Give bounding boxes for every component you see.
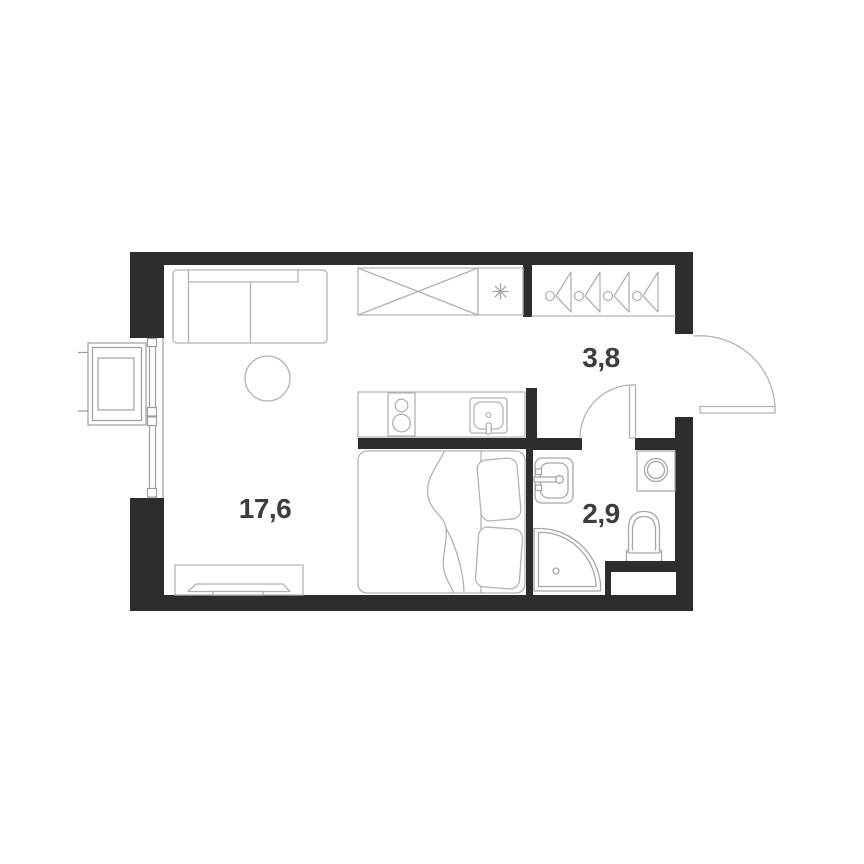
shaft-wall-top <box>605 561 676 572</box>
hanger-icon <box>575 272 601 312</box>
entrance-door <box>694 336 775 413</box>
ventilation-shaft <box>605 561 676 595</box>
wall-kitchen-hall <box>526 388 537 438</box>
kitchen-counter <box>358 392 525 437</box>
floor-plan-canvas: 17,6 3,8 2,9 <box>0 0 864 864</box>
washbasin-faucet <box>534 477 557 482</box>
tv-icon <box>188 584 290 592</box>
tv-stand <box>175 565 303 595</box>
bathroom-door <box>580 385 636 438</box>
shower-tray-outer <box>534 529 601 592</box>
window-handle-mid-2 <box>148 417 157 426</box>
appliance-nook <box>478 268 523 315</box>
wall-bath-top-left <box>533 438 582 450</box>
balcony-box-outer <box>88 343 146 425</box>
washing-machine-body <box>637 451 675 491</box>
shower <box>534 529 601 592</box>
entrance-door-leaf <box>700 407 775 414</box>
window-handle-mid-1 <box>148 408 157 417</box>
wardrobe <box>358 268 478 315</box>
bathroom-door-swing-arc <box>580 385 633 438</box>
balcony-stub-lines <box>78 353 88 412</box>
washbasin-tap <box>536 485 542 491</box>
wall-bed-bath <box>526 449 533 595</box>
sofa <box>173 270 327 343</box>
wall-left-upper <box>130 252 164 338</box>
wall-bath-top-right <box>635 438 675 450</box>
wall-right-upper <box>675 252 693 334</box>
hanger-icon <box>604 272 630 312</box>
pillow <box>475 527 523 590</box>
floor-plan-page: 17,6 3,8 2,9 <box>0 0 864 864</box>
wall-top <box>130 252 693 265</box>
entrance-door-swing-arc <box>694 336 775 406</box>
shaft-wall-left <box>605 572 611 595</box>
room-label-bathroom: 2,9 <box>582 498 619 529</box>
washbasin <box>534 458 573 503</box>
wall-under-kitchen <box>358 438 537 449</box>
wall-closet-divider <box>523 265 532 317</box>
washbasin-faucet-knob <box>556 476 564 484</box>
toilet <box>627 512 662 562</box>
window-handle-top <box>148 339 157 347</box>
pillow <box>476 457 521 521</box>
asterisk-icon <box>493 284 508 299</box>
round-table <box>245 356 290 401</box>
bed <box>358 451 525 593</box>
shaft-niche <box>611 572 676 595</box>
tv-stand-bar <box>213 592 263 596</box>
bathroom-door-leaf <box>630 385 636 438</box>
wall-bottom <box>130 595 693 611</box>
coat-rack <box>532 272 675 316</box>
washing-machine <box>637 451 675 491</box>
room-label-hallway: 3,8 <box>582 342 619 373</box>
hanger-icon <box>546 272 572 312</box>
window-handle-bottom <box>148 489 157 498</box>
hanger-icon <box>633 272 659 312</box>
kitchen-block <box>358 392 525 437</box>
wall-right-lower <box>675 417 693 611</box>
washbasin-tap <box>536 469 542 475</box>
wall-left-lower <box>130 498 164 611</box>
window-assembly <box>78 338 163 498</box>
room-label-living: 17,6 <box>239 493 292 524</box>
